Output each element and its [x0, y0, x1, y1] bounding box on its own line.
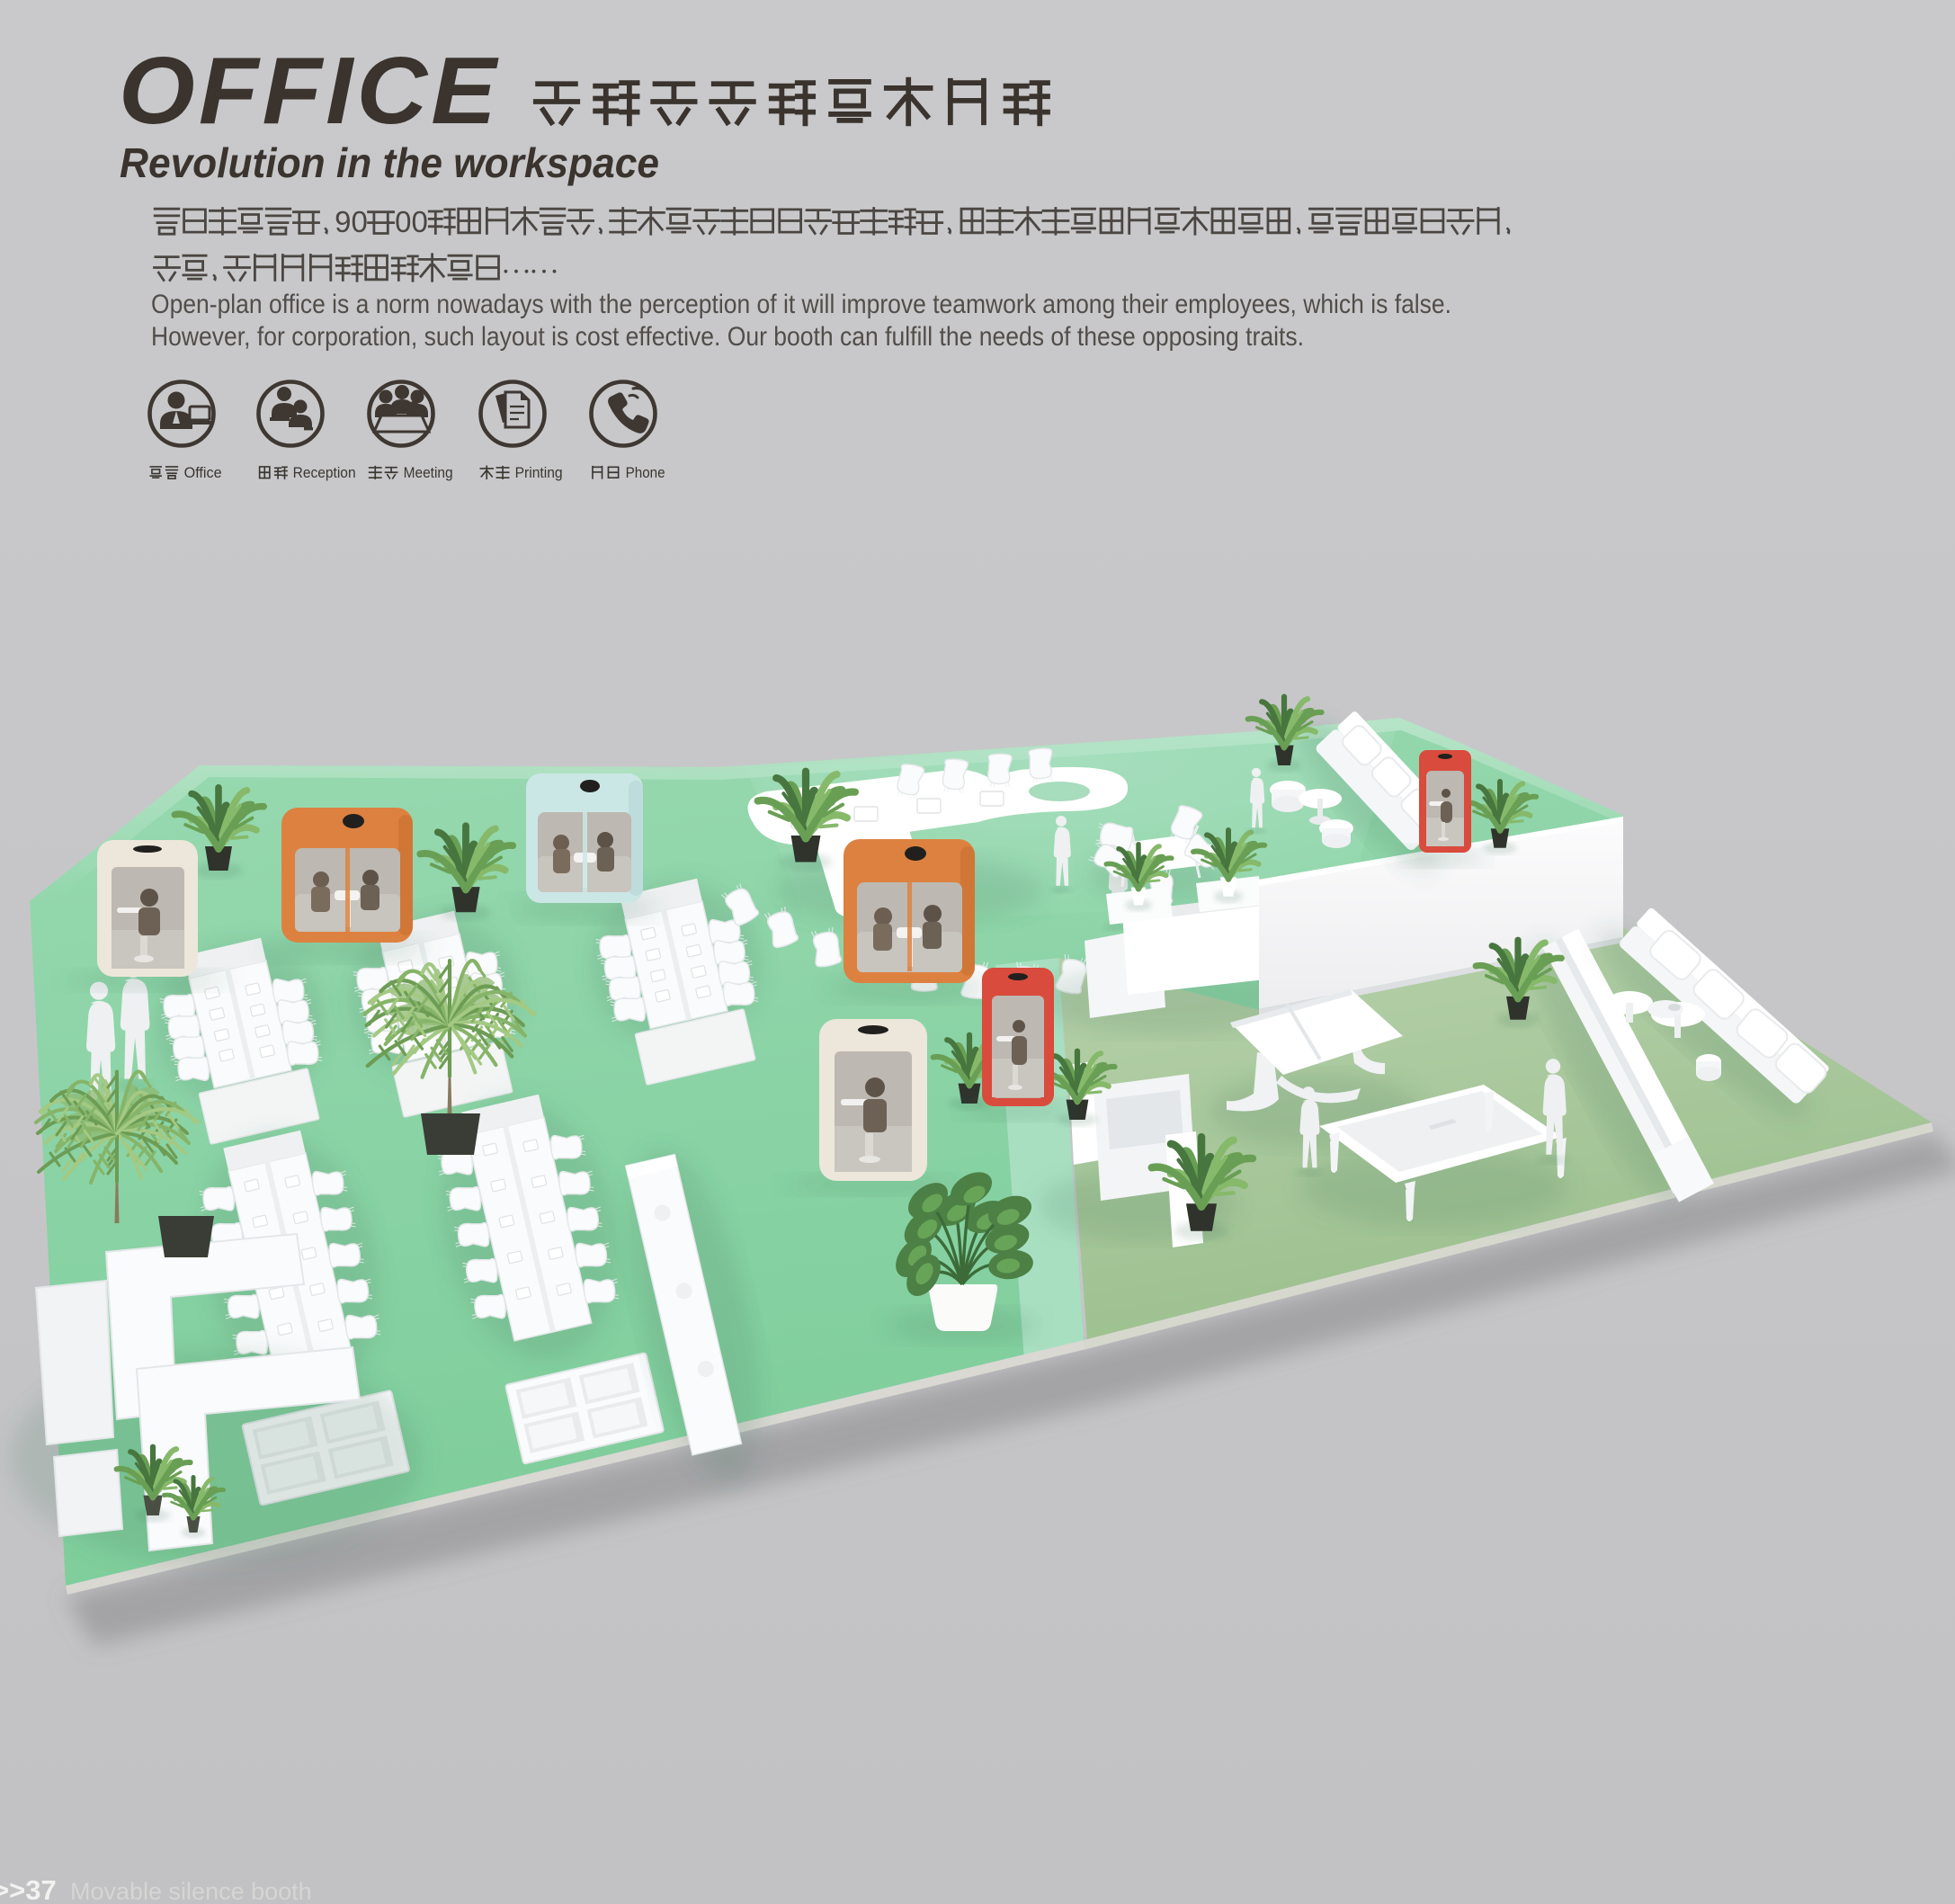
svg-text:Revolution in the workspace: Revolution in the workspace [120, 139, 659, 186]
svg-text:OFFICE: OFFICE [119, 38, 500, 144]
svg-text:However, for corporation, such: However, for corporation, such layout is… [151, 322, 1304, 352]
svg-text:90: 90 [335, 205, 368, 238]
svg-text:Open-plan office is a norm now: Open-plan office is a norm nowadays with… [151, 290, 1451, 319]
svg-text:Office: Office [184, 464, 222, 481]
svg-text:Meeting: Meeting [404, 464, 453, 481]
svg-text:Printing: Printing [515, 464, 563, 481]
svg-text:Reception: Reception [293, 464, 356, 481]
svg-text:00: 00 [395, 205, 428, 238]
svg-text:Phone: Phone [626, 464, 665, 481]
